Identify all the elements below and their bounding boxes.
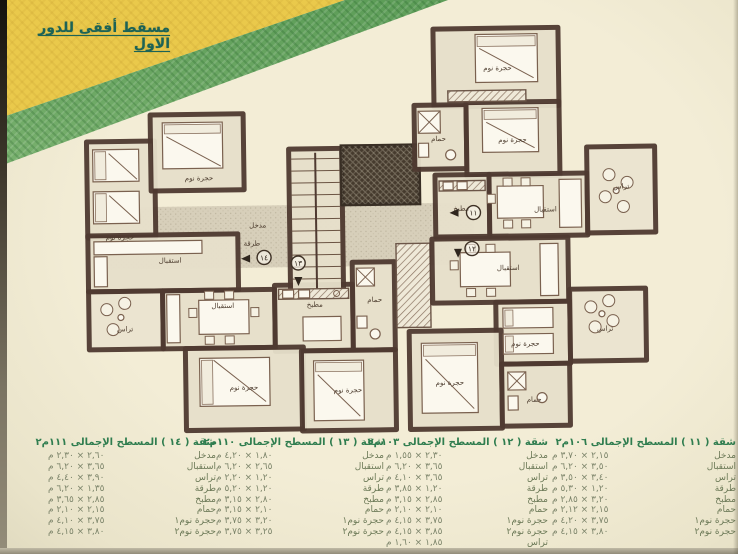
room-name: مدخل — [194, 451, 216, 461]
room-dimensions: ٣,٨٥ × ٤,١٥ م — [386, 527, 442, 537]
table-row: تراس٣,٦٥ × ٤,١٠ م — [386, 473, 548, 484]
unit-number: ١١ — [469, 208, 477, 217]
room-label-bedroom: حجرة نوم — [436, 379, 465, 387]
room-dimensions: ١,٢٠ × ٢,٢٠ م — [216, 473, 272, 483]
table-row: حمام٢,١٠ × ٢,١٠ م — [386, 505, 548, 516]
table-row: مدخل٢,٦٠ × ٢,٣٠ م — [48, 451, 216, 462]
room-dimensions: ٢,٦٥ × ٦,٢٠ م — [216, 462, 272, 472]
table-row: حمام٢,١٥ × ٢,١٢ م — [552, 505, 736, 516]
table-row: مطبخ٢,٨٥ × ٣,١٥ م — [386, 495, 548, 506]
table-row: تراس٣,٤٠ × ٣,٥٠ م — [552, 473, 736, 484]
table-row: مدخل٢,١٥ × ٣,٧٠ م — [552, 451, 736, 462]
room-dimensions: ٢,١٠ × ٣,١٥ م — [216, 505, 272, 515]
table-row: تراس١,٢٠ × ٢,٢٠ م — [216, 473, 384, 484]
room-label-reception: استقبال — [534, 205, 557, 213]
room-name: استقبال — [355, 462, 384, 472]
scan-edge-left — [0, 0, 7, 554]
room-label-reception: استقبال — [211, 302, 234, 310]
room-name: طرقة — [363, 484, 384, 494]
room-label-bath: حمام — [431, 135, 446, 143]
room-dimensions: ٣,٨٠ × ٤,١٥ م — [552, 527, 608, 537]
room-name: تراس — [527, 473, 548, 483]
room-label-bath: حمام — [367, 296, 382, 304]
duct — [396, 243, 431, 327]
room-dimensions: ٣,٧٥ × ٤,٢٠ م — [552, 516, 608, 526]
table-row: استقبال٣,٦٥ × ٦,٢٠ م — [48, 462, 216, 473]
room-name: مطبخ — [195, 495, 216, 505]
room-dimensions: ١,٢٠ × ٣,٨٥ م — [386, 484, 442, 494]
room-dimensions: ٢,٨٠ × ٣,١٥ م — [216, 495, 272, 505]
room-label-bedroom: حجرة نوم — [511, 340, 540, 348]
room-name: طرقة — [527, 484, 548, 494]
room-dimensions: ١,٣٥ × ٦,٢٠ م — [48, 484, 104, 494]
room-name: حجرة نوم١ — [507, 516, 549, 526]
room-dimensions: ٣,٨٠ × ٤,١٥ م — [48, 527, 104, 537]
room-dimensions: ٢,١٥ × ٢,١٢ م — [552, 505, 608, 515]
room-name: حجرة نوم٢ — [343, 527, 385, 537]
room-name: حمام — [365, 505, 384, 515]
unit-number: ١٤ — [260, 253, 268, 262]
table-title: شقة ( ١٢ ) المسطح الإجمالى ١٠٣م٢ — [386, 437, 548, 448]
room-dimensions: ٣,٧٥ × ٤,١٠ م — [48, 516, 104, 526]
room-label-entrance: مدخل — [249, 221, 266, 229]
scan-edge-bottom — [0, 548, 738, 554]
room-dimensions: ٣,٩٠ × ٤,٤٠ م — [48, 473, 104, 483]
room-name: حجرة نوم٢ — [175, 527, 217, 537]
area-table-apartment-3: شقة ( ١٢ ) المسطح الإجمالى ١٠٣م٢مدخل٢,٣٠… — [386, 437, 548, 549]
unit-number: ١٣ — [294, 259, 302, 268]
room-name: حمام — [529, 505, 548, 515]
room-label-terrace: تراس — [613, 182, 629, 190]
room-dimensions: ٣,٧٥ × ٤,١٥ م — [386, 516, 442, 526]
room-name: حجرة نوم٢ — [695, 527, 737, 537]
room-dimensions: ٣,٢٥ × ٣,٧٥ م — [216, 527, 272, 537]
table-row: طرقة١,٣٥ × ٦,٢٠ م — [48, 484, 216, 495]
room-name: حجرة نوم١ — [343, 516, 385, 526]
room-dimensions: ٣,٦٥ × ٤,١٠ م — [386, 473, 442, 483]
room-dimensions: ٢,٦٠ × ٢,٣٠ م — [48, 451, 104, 461]
table-title: شقة ( ١٣ ) المسطح الإجمالى ١١٠م٢ — [216, 437, 384, 448]
table-row: حجرة نوم٢٣,٨٠ × ٤,١٥ م — [48, 527, 216, 538]
room-name: تراس — [527, 538, 548, 548]
table-row: طرقة١,٢٠ × ٥,٣٠ م — [552, 484, 736, 495]
room-dimensions: ٣,٢٠ × ٢,٨٥ م — [552, 495, 608, 505]
room-label-kitchen: مطبخ — [307, 301, 323, 309]
room-label-bedroom: حجرة نوم — [105, 233, 134, 241]
room-label-bedroom: حجرة نوم — [230, 384, 259, 392]
room-label-bedroom: حجرة نوم — [185, 174, 214, 182]
unit-number: ١٢ — [468, 244, 476, 253]
room-label-bedroom: حجرة نوم — [483, 64, 512, 72]
room-dimensions: ٢,٨٥ × ٣,٦٥ م — [48, 495, 104, 505]
table-row: استقبال٣,٦٥ × ٦,٢٠ م — [386, 462, 548, 473]
room-label-bedroom: حجرة نوم — [334, 386, 363, 394]
table-row: حجرة نوم٢٣,٢٥ × ٣,٧٥ م — [216, 527, 384, 538]
room-dimensions: ٣,٢٠ × ٣,٧٥ م — [216, 516, 272, 526]
plan-drawing: حجرة نومحجرة نوماستقبالتراساستقبالمطبخحم… — [85, 26, 659, 434]
table-row: استقبال٣,٥٠ × ٦,٢٠ م — [552, 462, 736, 473]
table-row: مدخل٢,٣٠ × ١,٥٥ م — [386, 451, 548, 462]
room-label-reception: استقبال — [159, 257, 182, 265]
table-row: حجرة نوم١٣,٢٠ × ٣,٧٥ م — [216, 516, 384, 527]
table-row: مطبخ٢,٨٥ × ٣,٦٥ م — [48, 495, 216, 506]
area-table-apartment-1: شقة ( ١٤ ) المسطح الإجمالى ١١١م٢مدخل٢,٦٠… — [48, 437, 216, 538]
table-row: تراس٣,٩٠ × ٤,٤٠ م — [48, 473, 216, 484]
room-name: تراس — [363, 473, 384, 483]
table-row: استقبال٢,٦٥ × ٦,٢٠ م — [216, 462, 384, 473]
table-row: مطبخ٢,٨٠ × ٣,١٥ م — [216, 495, 384, 506]
room-label-bath: حمام — [527, 396, 542, 404]
table-row: حجرة نوم١٣,٧٥ × ٤,١٠ م — [48, 516, 216, 527]
room-name: حجرة نوم١ — [175, 516, 217, 526]
scan-edge-right — [733, 0, 738, 554]
room-dimensions: ٢,٣٠ × ١,٥٥ م — [386, 451, 442, 461]
table-row: طرقة١,٢٠ × ٥,٢٠ م — [216, 484, 384, 495]
room-label-bedroom: حجرة نوم — [498, 136, 527, 144]
room-label-hall: طرقة — [244, 240, 261, 248]
room-name: استقبال — [187, 462, 216, 472]
scanned-page: مسقط أفقى للدور الاول — [0, 0, 738, 554]
table-row: مدخل١,٨٠ × ٤,٢٠ م — [216, 451, 384, 462]
room-dimensions: ١,٨٠ × ٤,٢٠ م — [216, 451, 272, 461]
table-row: مطبخ٣,٢٠ × ٢,٨٥ م — [552, 495, 736, 506]
room-name: حجرة نوم١ — [695, 516, 737, 526]
room-dimensions: ٣,٥٠ × ٦,٢٠ م — [552, 462, 608, 472]
room-dimensions: ٣,٤٠ × ٣,٥٠ م — [552, 473, 608, 483]
room-dimensions: ٢,١٠ × ٢,١٠ م — [386, 505, 442, 515]
room-dimensions: ١,٨٥ × ١,٦٠ م — [386, 538, 442, 548]
area-table-apartment-4: شقة ( ١١ ) المسطح الإجمالى ١٠٦م٢مدخل٢,١٥… — [552, 437, 736, 538]
room-label-reception: استقبال — [497, 264, 520, 272]
table-row: طرقة١,٢٠ × ٣,٨٥ م — [386, 484, 548, 495]
room-label-terrace: تراس — [117, 325, 133, 333]
room-name: مطبخ — [363, 495, 384, 505]
room-name: مدخل — [526, 451, 548, 461]
room-dimensions: ١,٢٠ × ٥,٣٠ م — [552, 484, 608, 494]
room-name: مدخل — [362, 451, 384, 461]
area-table-apartment-2: شقة ( ١٣ ) المسطح الإجمالى ١١٠م٢مدخل١,٨٠… — [216, 437, 384, 538]
room-dimensions: ٣,٦٥ × ٦,٢٠ م — [48, 462, 104, 472]
table-title: شقة ( ١٤ ) المسطح الإجمالى ١١١م٢ — [48, 437, 216, 448]
room-dimensions: ٢,٨٥ × ٣,١٥ م — [386, 495, 442, 505]
table-row: حجرة نوم٢٣,٨٥ × ٤,١٥ م — [386, 527, 548, 538]
table-row: حمام٢,١٥ × ٢,١٠ م — [48, 505, 216, 516]
room-label-terrace: تراس — [597, 325, 613, 333]
room-name: حمام — [197, 505, 216, 515]
room-dimensions: ٢,١٥ × ٢,١٠ م — [48, 505, 104, 515]
room-name: مطبخ — [527, 495, 548, 505]
room-name: حجرة نوم٢ — [507, 527, 549, 537]
table-title: شقة ( ١١ ) المسطح الإجمالى ١٠٦م٢ — [552, 437, 736, 448]
table-row: حجرة نوم٢٣,٨٠ × ٤,١٥ م — [552, 527, 736, 538]
table-row: حجرة نوم١٣,٧٥ × ٤,١٥ م — [386, 516, 548, 527]
table-row: حمام٢,١٠ × ٣,١٥ م — [216, 505, 384, 516]
room-dimensions: ٢,١٥ × ٣,٧٠ م — [552, 451, 608, 461]
room-dimensions: ١,٢٠ × ٥,٢٠ م — [216, 484, 272, 494]
room-name: استقبال — [519, 462, 548, 472]
table-row: حجرة نوم١٣,٧٥ × ٤,٢٠ م — [552, 516, 736, 527]
room-name: تراس — [195, 473, 216, 483]
room-name: استقبال — [707, 462, 736, 472]
room-dimensions: ٣,٦٥ × ٦,٢٠ م — [386, 462, 442, 472]
room-name: طرقة — [195, 484, 216, 494]
